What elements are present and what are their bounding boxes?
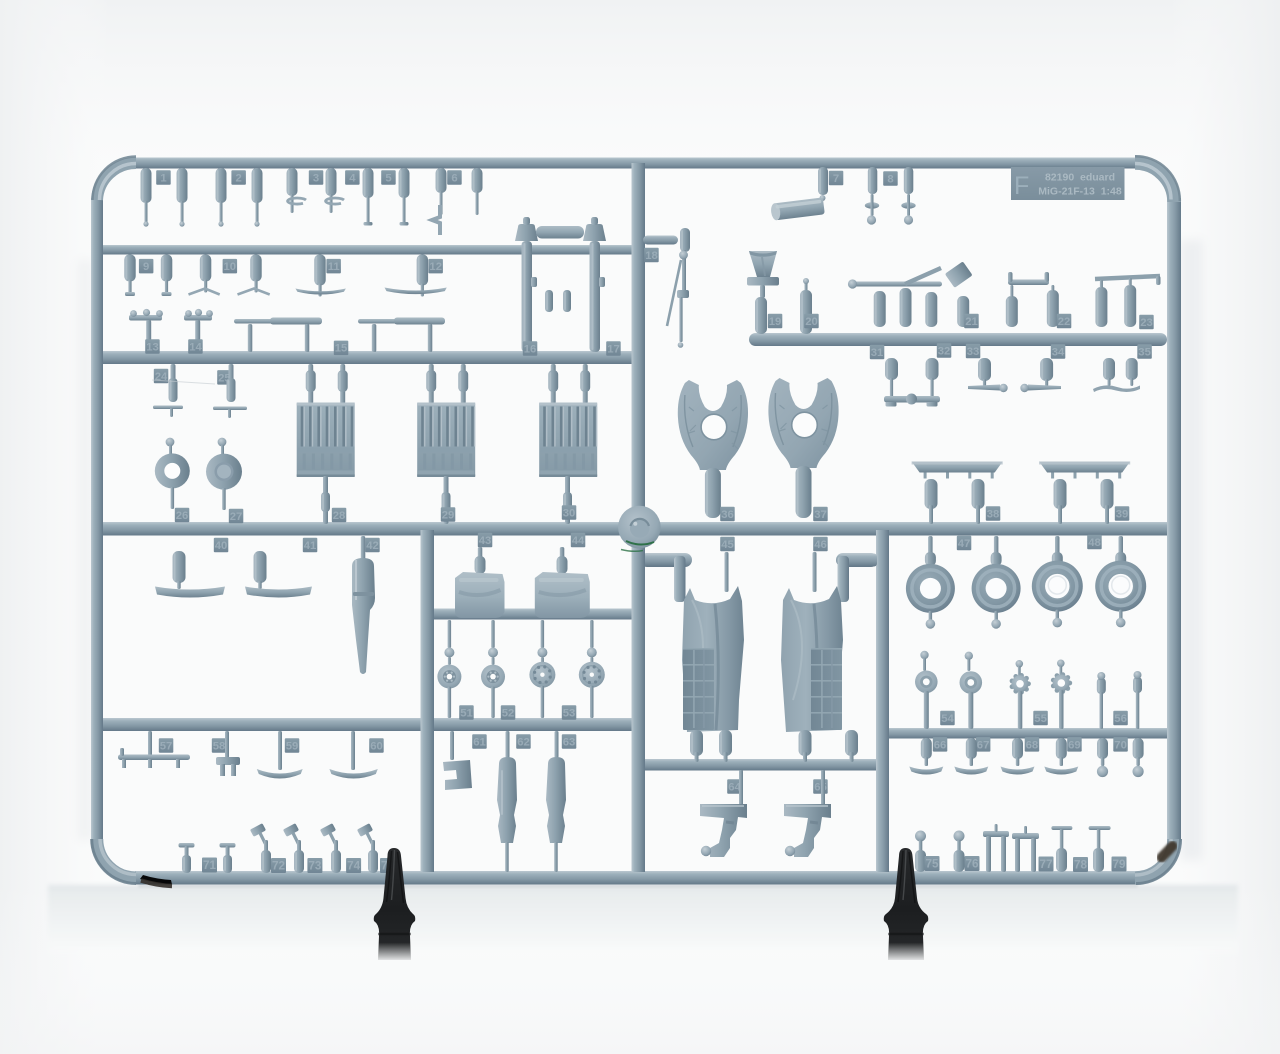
svg-text:59: 59 xyxy=(286,740,299,752)
svg-text:1: 1 xyxy=(160,172,166,184)
svg-text:MiG-21F-13 1:48: MiG-21F-13 1:48 xyxy=(1038,186,1122,198)
svg-text:3: 3 xyxy=(313,172,319,184)
svg-text:17: 17 xyxy=(607,343,620,355)
svg-text:57: 57 xyxy=(160,740,173,752)
svg-text:69: 69 xyxy=(1068,739,1081,751)
svg-text:52: 52 xyxy=(502,707,515,719)
svg-text:58: 58 xyxy=(213,740,226,752)
svg-text:34: 34 xyxy=(1052,346,1065,358)
svg-text:23: 23 xyxy=(1140,317,1153,329)
svg-text:61: 61 xyxy=(473,736,486,748)
svg-text:45: 45 xyxy=(721,539,734,551)
svg-text:11: 11 xyxy=(328,261,340,273)
svg-text:75: 75 xyxy=(925,858,939,871)
svg-text:30: 30 xyxy=(563,507,576,519)
svg-text:82190 eduard: 82190 eduard xyxy=(1045,172,1115,184)
svg-text:46: 46 xyxy=(814,539,827,551)
svg-text:35: 35 xyxy=(1138,346,1151,358)
svg-text:72: 72 xyxy=(272,860,286,873)
svg-text:36: 36 xyxy=(721,509,734,521)
svg-text:42: 42 xyxy=(366,540,379,552)
svg-text:16: 16 xyxy=(524,343,537,355)
svg-text:67: 67 xyxy=(977,739,990,751)
svg-text:22: 22 xyxy=(1058,316,1071,328)
svg-text:70: 70 xyxy=(1114,739,1127,751)
svg-text:26: 26 xyxy=(176,510,189,522)
svg-text:27: 27 xyxy=(230,511,243,523)
svg-text:15: 15 xyxy=(335,343,348,355)
svg-text:33: 33 xyxy=(967,346,980,358)
svg-text:68: 68 xyxy=(1026,739,1039,751)
svg-text:21: 21 xyxy=(965,316,978,328)
svg-text:20: 20 xyxy=(805,316,818,328)
svg-text:18: 18 xyxy=(645,250,658,262)
svg-text:2: 2 xyxy=(236,172,242,184)
svg-text:6: 6 xyxy=(451,172,457,184)
svg-text:56: 56 xyxy=(1114,713,1127,725)
svg-text:31: 31 xyxy=(871,347,884,359)
svg-text:38: 38 xyxy=(987,508,1000,520)
svg-text:32: 32 xyxy=(938,345,951,357)
svg-text:41: 41 xyxy=(304,540,317,552)
svg-text:53: 53 xyxy=(563,707,576,719)
svg-text:29: 29 xyxy=(442,509,455,521)
svg-text:9: 9 xyxy=(143,261,149,273)
svg-text:8: 8 xyxy=(887,173,893,185)
svg-text:19: 19 xyxy=(769,316,782,328)
svg-text:40: 40 xyxy=(215,540,228,552)
svg-text:44: 44 xyxy=(572,535,585,547)
svg-text:37: 37 xyxy=(814,509,827,521)
svg-text:13: 13 xyxy=(146,341,159,353)
svg-text:F: F xyxy=(1014,172,1029,200)
svg-text:63: 63 xyxy=(563,736,576,748)
svg-text:48: 48 xyxy=(1088,537,1101,549)
svg-text:5: 5 xyxy=(385,172,391,184)
svg-text:55: 55 xyxy=(1034,713,1047,725)
svg-text:60: 60 xyxy=(370,740,383,752)
svg-text:76: 76 xyxy=(965,858,979,871)
svg-text:54: 54 xyxy=(941,713,954,725)
svg-text:4: 4 xyxy=(349,172,356,184)
svg-text:71: 71 xyxy=(203,859,217,872)
svg-text:73: 73 xyxy=(308,860,322,873)
svg-text:66: 66 xyxy=(934,739,947,751)
svg-text:77: 77 xyxy=(1039,858,1052,871)
svg-text:10: 10 xyxy=(224,261,237,273)
svg-text:7: 7 xyxy=(833,173,839,185)
svg-text:43: 43 xyxy=(479,535,492,547)
svg-text:47: 47 xyxy=(958,538,971,550)
svg-text:79: 79 xyxy=(1112,858,1126,871)
svg-text:74: 74 xyxy=(347,860,361,873)
svg-text:78: 78 xyxy=(1074,859,1088,872)
svg-text:28: 28 xyxy=(333,510,346,522)
svg-text:62: 62 xyxy=(517,736,530,748)
svg-text:12: 12 xyxy=(429,261,442,273)
svg-text:39: 39 xyxy=(1116,508,1129,520)
svg-text:14: 14 xyxy=(189,341,202,353)
svg-text:51: 51 xyxy=(460,707,473,719)
